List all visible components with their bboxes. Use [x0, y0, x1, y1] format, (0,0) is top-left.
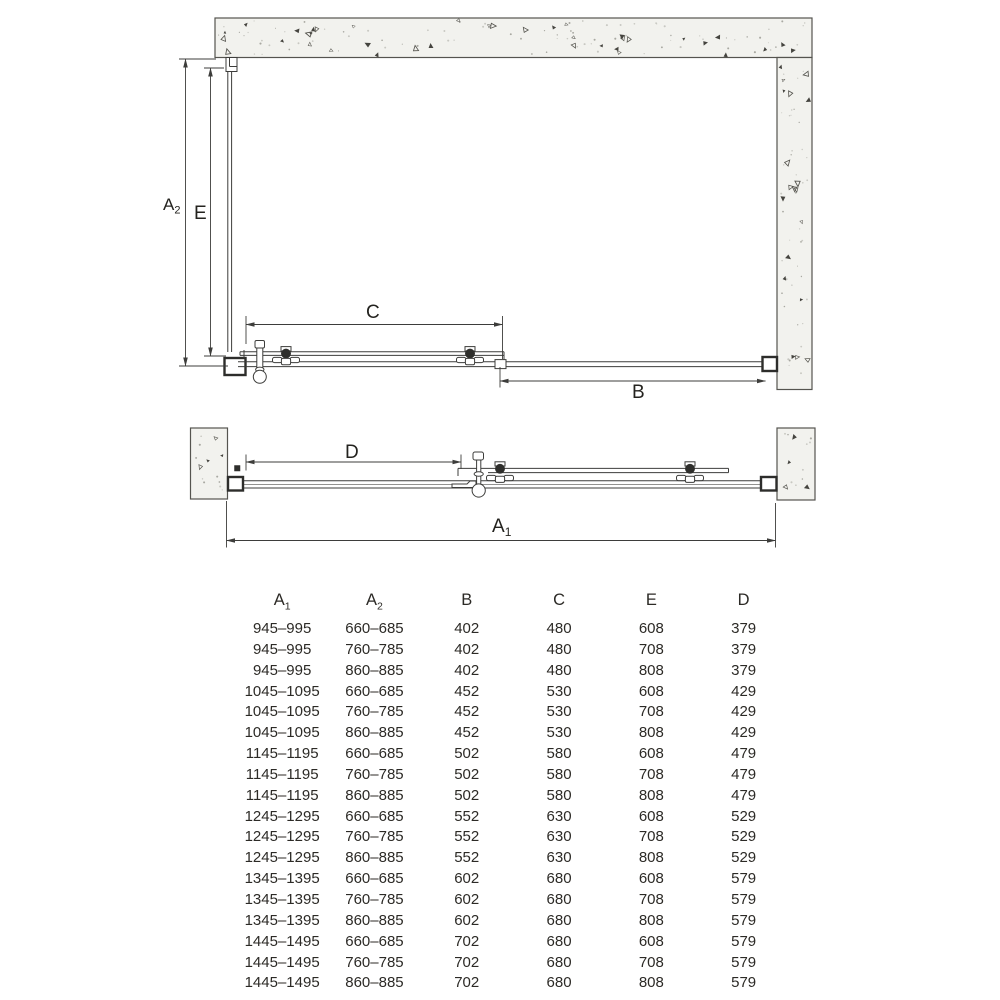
table-cell: 530 — [513, 702, 605, 723]
table-row: 1445–1495760–785702680708579 — [236, 953, 790, 974]
table-cell: 480 — [513, 640, 605, 661]
table-cell: 502 — [421, 744, 513, 765]
technical-drawing-page: A2 E C B — [0, 0, 1000, 1000]
table-header-row: A1 A2 B C E D — [236, 590, 790, 619]
table-cell: 608 — [605, 932, 697, 953]
unit-right-wall — [777, 428, 815, 500]
table-cell: 708 — [605, 953, 697, 974]
table-cell: 608 — [605, 744, 697, 765]
table-cell: 860–885 — [328, 786, 420, 807]
table-cell: 529 — [697, 827, 789, 848]
table-cell: 480 — [513, 661, 605, 682]
table-cell: 708 — [605, 702, 697, 723]
table-cell: 1345–1395 — [236, 911, 328, 932]
table-cell: 1445–1495 — [236, 932, 328, 953]
table-cell: 552 — [421, 848, 513, 869]
table-cell: 808 — [605, 723, 697, 744]
table-cell: 379 — [697, 619, 789, 640]
table-cell: 708 — [605, 890, 697, 911]
table-cell: 1445–1495 — [236, 953, 328, 974]
table-cell: 680 — [513, 869, 605, 890]
table-cell: 552 — [421, 827, 513, 848]
table-cell: 1145–1195 — [236, 786, 328, 807]
table-cell: 479 — [697, 765, 789, 786]
table-cell: 680 — [513, 932, 605, 953]
table-cell: 945–995 — [236, 619, 328, 640]
table-cell: 602 — [421, 911, 513, 932]
table-cell: 452 — [421, 682, 513, 703]
dimension-b: B — [500, 367, 767, 403]
table-cell: 808 — [605, 848, 697, 869]
table-cell: 608 — [605, 619, 697, 640]
table-cell: 702 — [421, 932, 513, 953]
table-cell: 580 — [513, 765, 605, 786]
table-cell: 945–995 — [236, 640, 328, 661]
column-header-b: B — [421, 590, 513, 619]
table-cell: 479 — [697, 744, 789, 765]
table-row: 1245–1295760–785552630708529 — [236, 827, 790, 848]
table-cell: 502 — [421, 765, 513, 786]
diagram-canvas: A2 E C B — [0, 0, 1000, 560]
table-cell: 429 — [697, 723, 789, 744]
floor-guide — [452, 481, 476, 488]
table-cell: 529 — [697, 848, 789, 869]
table-cell: 702 — [421, 953, 513, 974]
unit-right-bracket — [761, 477, 777, 491]
table-cell: 402 — [421, 619, 513, 640]
table-cell: 1045–1095 — [236, 723, 328, 744]
right-wall — [777, 58, 812, 390]
unit-left-wall — [191, 428, 228, 499]
table-row: 945–995760–785402480708379 — [236, 640, 790, 661]
dimension-e: E — [194, 68, 226, 357]
dim-label-e: E — [194, 203, 207, 224]
table-cell: 552 — [421, 807, 513, 828]
dim-label-d: D — [345, 442, 359, 463]
table-cell: 1245–1295 — [236, 848, 328, 869]
top-wall — [215, 18, 812, 58]
table-cell: 602 — [421, 890, 513, 911]
table-cell: 708 — [605, 765, 697, 786]
table-row: 1045–1095660–685452530608429 — [236, 682, 790, 703]
column-header-d: D — [697, 590, 789, 619]
table-cell: 860–885 — [328, 911, 420, 932]
table-cell: 1345–1395 — [236, 869, 328, 890]
table-cell: 502 — [421, 786, 513, 807]
unit-left-bracket — [228, 477, 243, 491]
table-cell: 579 — [697, 890, 789, 911]
table-cell: 630 — [513, 827, 605, 848]
table-cell: 708 — [605, 640, 697, 661]
table-cell: 580 — [513, 744, 605, 765]
table-cell: 808 — [605, 911, 697, 932]
table-cell: 760–785 — [328, 953, 420, 974]
table-cell: 630 — [513, 807, 605, 828]
wall-texture — [218, 19, 812, 375]
table-cell: 860–885 — [328, 661, 420, 682]
table-cell: 608 — [605, 682, 697, 703]
table-cell: 479 — [697, 786, 789, 807]
table-cell: 760–785 — [328, 765, 420, 786]
table-row: 1045–1095860–885452530808429 — [236, 723, 790, 744]
table-cell: 680 — [513, 911, 605, 932]
table-row: 1145–1195660–685502580608479 — [236, 744, 790, 765]
table-cell: 379 — [697, 661, 789, 682]
table-cell: 530 — [513, 723, 605, 744]
table-cell: 630 — [513, 848, 605, 869]
column-header-c: C — [513, 590, 605, 619]
dim-label-b: B — [632, 382, 645, 403]
plan-view: A2 E C B — [163, 18, 812, 403]
wall-fixing — [235, 466, 241, 472]
table-cell: 1245–1295 — [236, 807, 328, 828]
unit-door-handle — [472, 452, 485, 497]
table-cell: 379 — [697, 640, 789, 661]
table-cell: 452 — [421, 702, 513, 723]
table-cell: 680 — [513, 973, 605, 994]
table-cell: 860–885 — [328, 973, 420, 994]
table-cell: 1045–1095 — [236, 702, 328, 723]
table-cell: 579 — [697, 953, 789, 974]
table-body: 945–995660–685402480608379945–995760–785… — [236, 619, 790, 994]
dimension-d: D — [246, 442, 462, 471]
table-cell: 660–685 — [328, 807, 420, 828]
table-row: 945–995660–685402480608379 — [236, 619, 790, 640]
table-cell: 1145–1195 — [236, 744, 328, 765]
table-cell: 702 — [421, 973, 513, 994]
column-header-a2: A2 — [328, 590, 420, 619]
table-cell: 579 — [697, 869, 789, 890]
door-unit-view: D A1 — [191, 428, 816, 548]
panel-connector — [495, 360, 506, 369]
table-cell: 480 — [513, 619, 605, 640]
column-header-a1: A1 — [236, 590, 328, 619]
top-wall-profile — [226, 58, 237, 72]
table-row: 1345–1395660–685602680608579 — [236, 869, 790, 890]
table-row: 1445–1495660–685702680608579 — [236, 932, 790, 953]
table-cell: 1445–1495 — [236, 973, 328, 994]
table-row: 1445–1495860–885702680808579 — [236, 973, 790, 994]
table-row: 1245–1295660–685552630608529 — [236, 807, 790, 828]
table-cell: 660–685 — [328, 619, 420, 640]
table-cell: 579 — [697, 911, 789, 932]
table-cell: 452 — [421, 723, 513, 744]
table-cell: 660–685 — [328, 682, 420, 703]
table-cell: 608 — [605, 869, 697, 890]
table-row: 1345–1395860–885602680808579 — [236, 911, 790, 932]
table-cell: 760–785 — [328, 640, 420, 661]
table-cell: 402 — [421, 640, 513, 661]
table-cell: 429 — [697, 682, 789, 703]
table-row: 1145–1195860–885502580808479 — [236, 786, 790, 807]
table-cell: 579 — [697, 973, 789, 994]
table-cell: 602 — [421, 869, 513, 890]
dimension-a1: A1 — [226, 501, 776, 548]
table-cell: 760–785 — [328, 702, 420, 723]
table-cell: 680 — [513, 953, 605, 974]
table-cell: 1245–1295 — [236, 827, 328, 848]
dim-label-a2: A2 — [163, 195, 180, 217]
table-row: 1345–1395760–785602680708579 — [236, 890, 790, 911]
table-cell: 760–785 — [328, 890, 420, 911]
table-cell: 580 — [513, 786, 605, 807]
table-cell: 1045–1095 — [236, 682, 328, 703]
table-cell: 808 — [605, 661, 697, 682]
table-cell: 760–785 — [328, 827, 420, 848]
right-wall-profile — [763, 357, 778, 371]
dim-label-c: C — [366, 302, 380, 323]
table-cell: 945–995 — [236, 661, 328, 682]
table-cell: 660–685 — [328, 869, 420, 890]
table-cell: 708 — [605, 827, 697, 848]
table-cell: 808 — [605, 973, 697, 994]
corner-bracket — [225, 350, 246, 375]
table-cell: 429 — [697, 702, 789, 723]
table-cell: 1345–1395 — [236, 890, 328, 911]
left-glass-panel — [226, 58, 237, 353]
table-row: 945–995860–885402480808379 — [236, 661, 790, 682]
table-row: 1145–1195760–785502580708479 — [236, 765, 790, 786]
table-cell: 680 — [513, 890, 605, 911]
table-row: 1245–1295860–885552630808529 — [236, 848, 790, 869]
table-cell: 402 — [421, 661, 513, 682]
table-cell: 530 — [513, 682, 605, 703]
table-cell: 660–685 — [328, 932, 420, 953]
table-cell: 1145–1195 — [236, 765, 328, 786]
dim-label-a1: A1 — [492, 516, 512, 539]
table-cell: 860–885 — [328, 848, 420, 869]
table-cell: 529 — [697, 807, 789, 828]
table-cell: 860–885 — [328, 723, 420, 744]
table-cell: 808 — [605, 786, 697, 807]
table-row: 1045–1095760–785452530708429 — [236, 702, 790, 723]
table-cell: 608 — [605, 807, 697, 828]
table-cell: 660–685 — [328, 744, 420, 765]
table-cell: 579 — [697, 932, 789, 953]
column-header-e: E — [605, 590, 697, 619]
dimensions-table: A1 A2 B C E D 945–995660–685402480608379… — [236, 590, 790, 994]
